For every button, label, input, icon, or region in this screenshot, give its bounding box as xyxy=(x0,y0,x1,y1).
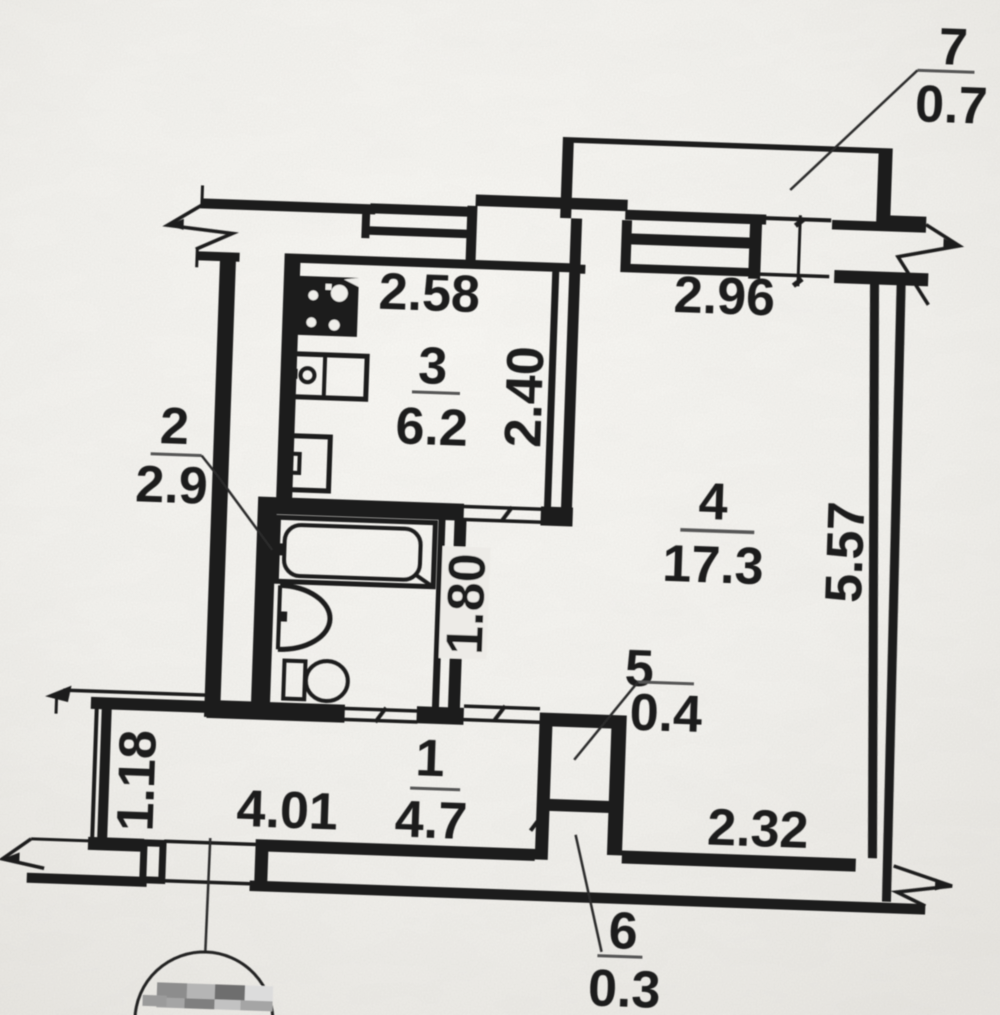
svg-text:5.57: 5.57 xyxy=(815,500,876,603)
svg-text:2.32: 2.32 xyxy=(706,798,809,859)
svg-text:6: 6 xyxy=(608,902,639,961)
svg-text:17.3: 17.3 xyxy=(661,535,764,596)
svg-text:0.3: 0.3 xyxy=(587,959,661,1015)
svg-text:4: 4 xyxy=(698,473,729,532)
svg-text:1.80: 1.80 xyxy=(436,552,497,655)
svg-text:6.2: 6.2 xyxy=(395,397,469,457)
svg-text:4.7: 4.7 xyxy=(394,791,468,851)
svg-text:0.7: 0.7 xyxy=(914,75,988,135)
svg-text:2.58: 2.58 xyxy=(378,263,481,324)
svg-text:1: 1 xyxy=(415,729,446,788)
svg-text:2: 2 xyxy=(159,397,190,456)
svg-text:2.40: 2.40 xyxy=(494,345,555,448)
svg-text:2.96: 2.96 xyxy=(673,266,776,327)
svg-text:3: 3 xyxy=(417,337,448,396)
svg-text:7: 7 xyxy=(938,18,969,77)
svg-text:2.9: 2.9 xyxy=(134,455,208,515)
svg-text:4.01: 4.01 xyxy=(236,780,339,841)
svg-text:0.4: 0.4 xyxy=(629,684,703,744)
svg-text:1.18: 1.18 xyxy=(106,729,167,832)
